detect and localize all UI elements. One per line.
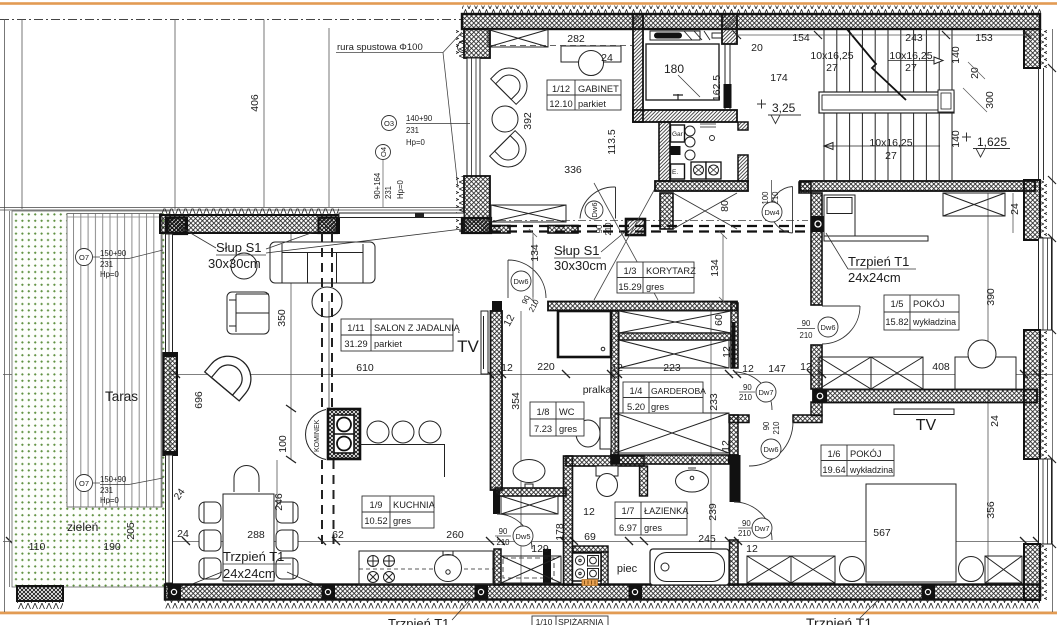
svg-text:231: 231 [406, 126, 419, 135]
svg-text:KOMINEK: KOMINEK [314, 419, 321, 452]
svg-text:12: 12 [611, 362, 623, 374]
svg-text:350: 350 [276, 309, 288, 327]
svg-text:Słup S1: Słup S1 [216, 240, 262, 255]
svg-text:Hp=0: Hp=0 [396, 179, 405, 199]
svg-text:231: 231 [384, 186, 393, 199]
svg-text:239: 239 [707, 503, 719, 521]
svg-text:Dw7: Dw7 [754, 524, 769, 533]
svg-text:O7: O7 [79, 479, 89, 488]
svg-text:gres: gres [644, 523, 662, 533]
svg-text:210: 210 [738, 529, 752, 538]
svg-text:7.23: 7.23 [534, 424, 552, 434]
svg-text:Trzpień T1: Trzpień T1 [388, 616, 449, 625]
svg-text:O7: O7 [79, 253, 89, 262]
svg-text:rura spustowa Φ100: rura spustowa Φ100 [337, 42, 423, 53]
svg-text:1/8: 1/8 [537, 407, 550, 417]
svg-text:147: 147 [768, 363, 786, 375]
svg-text:300: 300 [984, 91, 996, 109]
svg-text:610: 610 [356, 362, 374, 374]
svg-text:356: 356 [985, 501, 997, 519]
svg-text:174: 174 [770, 72, 788, 84]
svg-text:150+90: 150+90 [100, 475, 127, 484]
svg-text:Hp=0: Hp=0 [100, 270, 120, 279]
svg-text:134: 134 [529, 244, 541, 262]
svg-text:178: 178 [554, 523, 566, 541]
svg-text:1/7: 1/7 [622, 506, 635, 516]
svg-text:180: 180 [664, 62, 684, 76]
svg-text:SALON Z JADALNIĄ: SALON Z JADALNIĄ [374, 323, 461, 333]
svg-text:24x24cm: 24x24cm [223, 566, 276, 581]
svg-text:WC: WC [559, 407, 575, 417]
svg-text:gres: gres [651, 402, 669, 412]
svg-text:90+164: 90+164 [373, 172, 382, 199]
svg-text:10x16,25: 10x16,25 [810, 50, 853, 62]
svg-text:Dw6: Dw6 [763, 445, 778, 454]
svg-text:567: 567 [873, 527, 891, 539]
svg-text:30x30cm: 30x30cm [208, 256, 261, 271]
svg-text:gres: gres [559, 424, 577, 434]
svg-text:SPIŻARNIA: SPIŻARNIA [558, 617, 604, 625]
svg-text:ŁAZIENKA: ŁAZIENKA [644, 506, 689, 516]
svg-text:90: 90 [762, 421, 771, 430]
svg-text:Taras: Taras [105, 389, 138, 404]
svg-text:GABINET: GABINET [578, 84, 619, 94]
svg-text:210: 210 [772, 421, 781, 435]
svg-text:220: 220 [537, 361, 555, 373]
svg-text:24: 24 [1009, 203, 1021, 215]
svg-text:12: 12 [721, 346, 733, 358]
svg-text:pralka: pralka [583, 384, 612, 396]
svg-text:10.52: 10.52 [364, 516, 387, 526]
svg-text:154: 154 [792, 32, 810, 44]
svg-text:223: 223 [663, 362, 681, 374]
svg-text:162.5: 162.5 [711, 75, 723, 101]
svg-text:1/9: 1/9 [370, 500, 383, 510]
svg-text:233: 233 [708, 393, 720, 411]
svg-text:80: 80 [719, 200, 731, 212]
svg-text:20: 20 [751, 42, 763, 54]
svg-text:Hp=0: Hp=0 [406, 138, 426, 147]
svg-text:3,25: 3,25 [772, 101, 796, 115]
svg-text:piec: piec [617, 563, 638, 575]
svg-text:140+90: 140+90 [406, 114, 433, 123]
svg-text:24: 24 [989, 415, 1001, 427]
svg-text:27: 27 [826, 62, 838, 74]
svg-text:6.97: 6.97 [619, 523, 637, 533]
svg-text:12: 12 [501, 362, 513, 374]
svg-text:gres: gres [393, 516, 411, 526]
svg-text:231: 231 [100, 260, 113, 269]
svg-text:Gar: Gar [672, 131, 684, 138]
svg-text:408: 408 [932, 361, 950, 373]
svg-text:90: 90 [499, 527, 508, 536]
svg-text:113.5: 113.5 [606, 129, 618, 155]
svg-text:12: 12 [742, 363, 754, 375]
svg-text:210: 210 [604, 222, 613, 236]
svg-text:69: 69 [584, 531, 596, 543]
svg-text:Dw4: Dw4 [764, 208, 779, 217]
svg-text:24: 24 [601, 52, 613, 64]
svg-text:1/6: 1/6 [828, 449, 841, 459]
svg-text:wykładzina: wykładzina [912, 317, 956, 327]
svg-text:24: 24 [177, 528, 189, 540]
svg-text:parkiet: parkiet [374, 339, 402, 349]
svg-text:KUCHNIA: KUCHNIA [393, 500, 436, 510]
svg-text:wykładzina: wykładzina [849, 465, 893, 475]
svg-text:210: 210 [496, 538, 510, 547]
svg-text:O4: O4 [379, 147, 388, 157]
svg-text:245: 245 [698, 533, 716, 545]
svg-text:696: 696 [193, 391, 205, 409]
svg-text:205: 205 [125, 522, 137, 540]
svg-text:POKÓJ: POKÓJ [850, 449, 882, 459]
svg-text:246: 246 [273, 493, 285, 511]
svg-text:10x16,25: 10x16,25 [889, 50, 932, 62]
svg-text:1/12: 1/12 [552, 84, 570, 94]
svg-text:12: 12 [720, 440, 732, 452]
svg-text:24x24cm: 24x24cm [848, 270, 901, 285]
svg-text:POKÓJ: POKÓJ [913, 299, 945, 309]
svg-text:Dw6: Dw6 [820, 323, 835, 332]
svg-text:15.82: 15.82 [885, 317, 908, 327]
svg-text:12.10: 12.10 [549, 99, 572, 109]
svg-text:O3: O3 [384, 119, 394, 128]
svg-text:288: 288 [247, 529, 265, 541]
svg-text:1,625: 1,625 [977, 135, 1007, 149]
svg-text:129: 129 [531, 543, 549, 555]
svg-text:12: 12 [746, 543, 758, 555]
svg-text:1/10: 1/10 [536, 617, 553, 625]
svg-text:Dw6: Dw6 [590, 202, 599, 217]
svg-text:30x30cm: 30x30cm [554, 258, 607, 273]
svg-text:243: 243 [905, 32, 923, 44]
svg-text:90: 90 [595, 224, 604, 233]
svg-text:1/3: 1/3 [624, 266, 637, 276]
svg-text:354: 354 [510, 392, 522, 410]
svg-text:TV: TV [916, 417, 937, 434]
svg-text:KORYTARZ: KORYTARZ [646, 266, 696, 276]
svg-text:90: 90 [742, 519, 751, 528]
svg-text:Dw6: Dw6 [513, 277, 528, 286]
svg-text:GARDEROBA: GARDEROBA [651, 386, 706, 396]
svg-text:Trzpień T1: Trzpień T1 [806, 615, 872, 625]
svg-text:140: 140 [950, 130, 962, 148]
svg-text:27: 27 [885, 150, 897, 162]
svg-text:TV: TV [457, 337, 479, 356]
svg-text:12: 12 [800, 361, 812, 373]
svg-text:19.64: 19.64 [822, 465, 845, 475]
svg-text:27: 27 [905, 62, 917, 74]
svg-text:390: 390 [985, 288, 997, 306]
svg-text:110: 110 [29, 541, 46, 553]
svg-text:282: 282 [567, 33, 585, 45]
svg-text:190: 190 [103, 541, 121, 553]
svg-text:62: 62 [332, 529, 344, 541]
svg-text:1/5: 1/5 [891, 299, 904, 309]
svg-text:zieleń: zieleń [67, 520, 98, 534]
svg-text:231: 231 [100, 486, 113, 495]
svg-text:15.29: 15.29 [618, 282, 641, 292]
svg-text:Dw5: Dw5 [515, 532, 530, 541]
svg-text:140: 140 [950, 46, 962, 64]
svg-text:1/4: 1/4 [630, 386, 643, 396]
svg-text:1/11: 1/11 [347, 323, 364, 333]
svg-text:150+90: 150+90 [100, 249, 127, 258]
svg-text:12: 12 [583, 506, 595, 518]
svg-text:parkiet: parkiet [578, 99, 606, 109]
svg-text:90: 90 [802, 319, 811, 328]
svg-text:90: 90 [743, 383, 752, 392]
svg-text:134: 134 [709, 259, 721, 277]
svg-text:Trzpień T1: Trzpień T1 [223, 549, 284, 564]
svg-text:Dw7: Dw7 [758, 388, 773, 397]
svg-text:100: 100 [277, 435, 289, 453]
svg-text:Trzpień T1: Trzpień T1 [848, 254, 909, 269]
svg-text:406: 406 [249, 94, 261, 112]
svg-text:31.29: 31.29 [344, 339, 367, 349]
svg-text:5.20: 5.20 [627, 402, 645, 412]
svg-text:60: 60 [713, 314, 725, 326]
svg-text:210: 210 [739, 393, 753, 402]
svg-text:Słup S1: Słup S1 [554, 243, 600, 258]
svg-text:260: 260 [446, 529, 464, 541]
svg-text:Hp=0: Hp=0 [100, 496, 120, 505]
svg-text:336: 336 [564, 164, 582, 176]
svg-text:153: 153 [975, 32, 993, 44]
svg-text:E.: E. [672, 169, 678, 176]
svg-text:gres: gres [646, 282, 664, 292]
svg-text:10x16,25: 10x16,25 [869, 137, 912, 149]
svg-text:392: 392 [522, 112, 534, 130]
svg-text:210: 210 [799, 331, 813, 340]
